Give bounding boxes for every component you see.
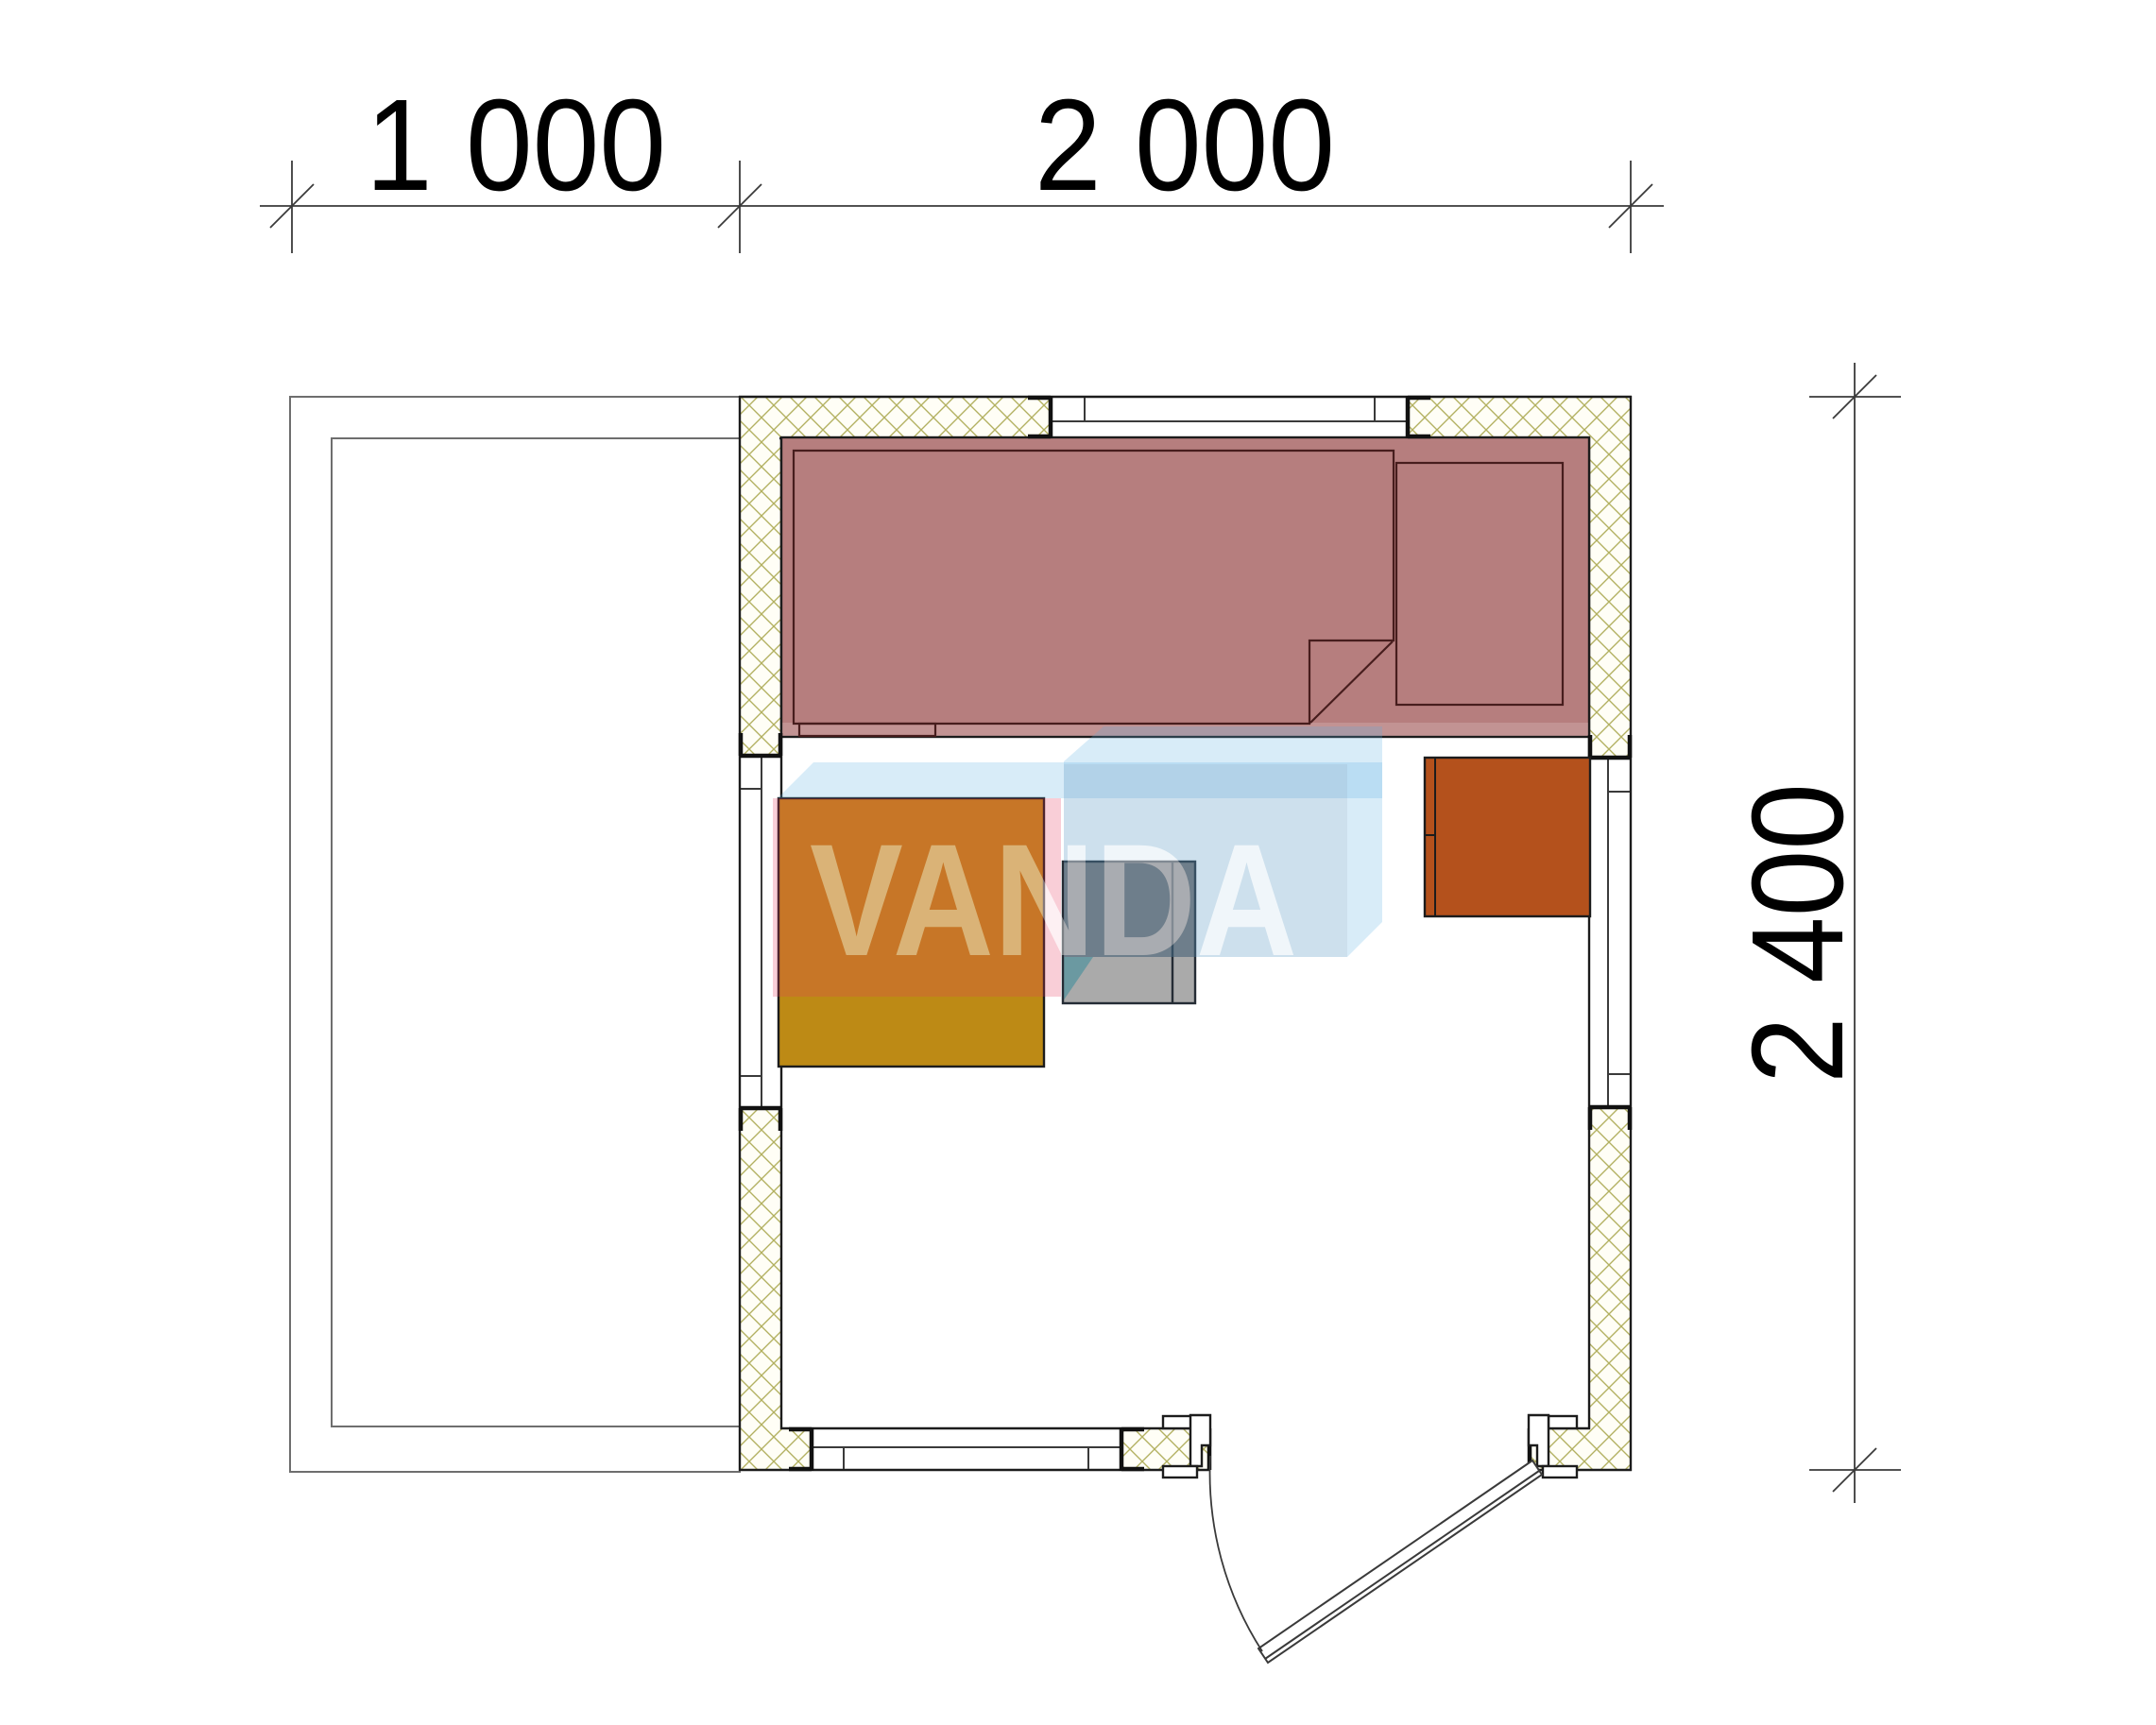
svg-text:1 000: 1 000	[366, 73, 666, 218]
svg-text:2 400: 2 400	[1725, 783, 1871, 1084]
svg-text:2 000: 2 000	[1035, 73, 1335, 218]
svg-text:VANDA: VANDA	[810, 811, 1297, 989]
